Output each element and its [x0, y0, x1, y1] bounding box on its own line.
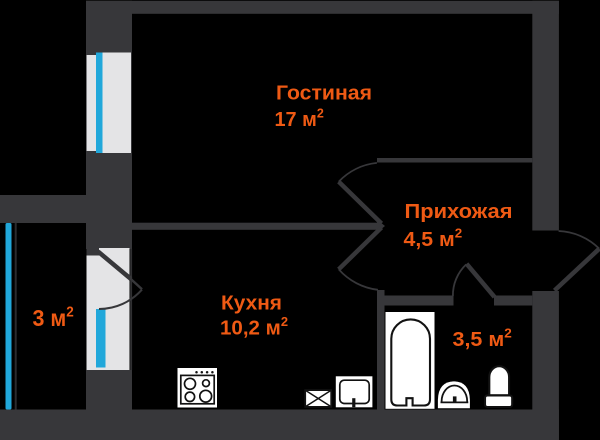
svg-text:10,2 м2: 10,2 м2: [220, 314, 288, 340]
svg-text:Гостиная: Гостиная: [276, 82, 372, 105]
svg-text:Кухня: Кухня: [221, 292, 282, 315]
svg-text:4,5 м2: 4,5 м2: [404, 225, 463, 251]
svg-text:3,5 м2: 3,5 м2: [453, 326, 512, 352]
svg-text:Прихожая: Прихожая: [405, 200, 513, 223]
svg-text:17 м2: 17 м2: [275, 106, 324, 132]
